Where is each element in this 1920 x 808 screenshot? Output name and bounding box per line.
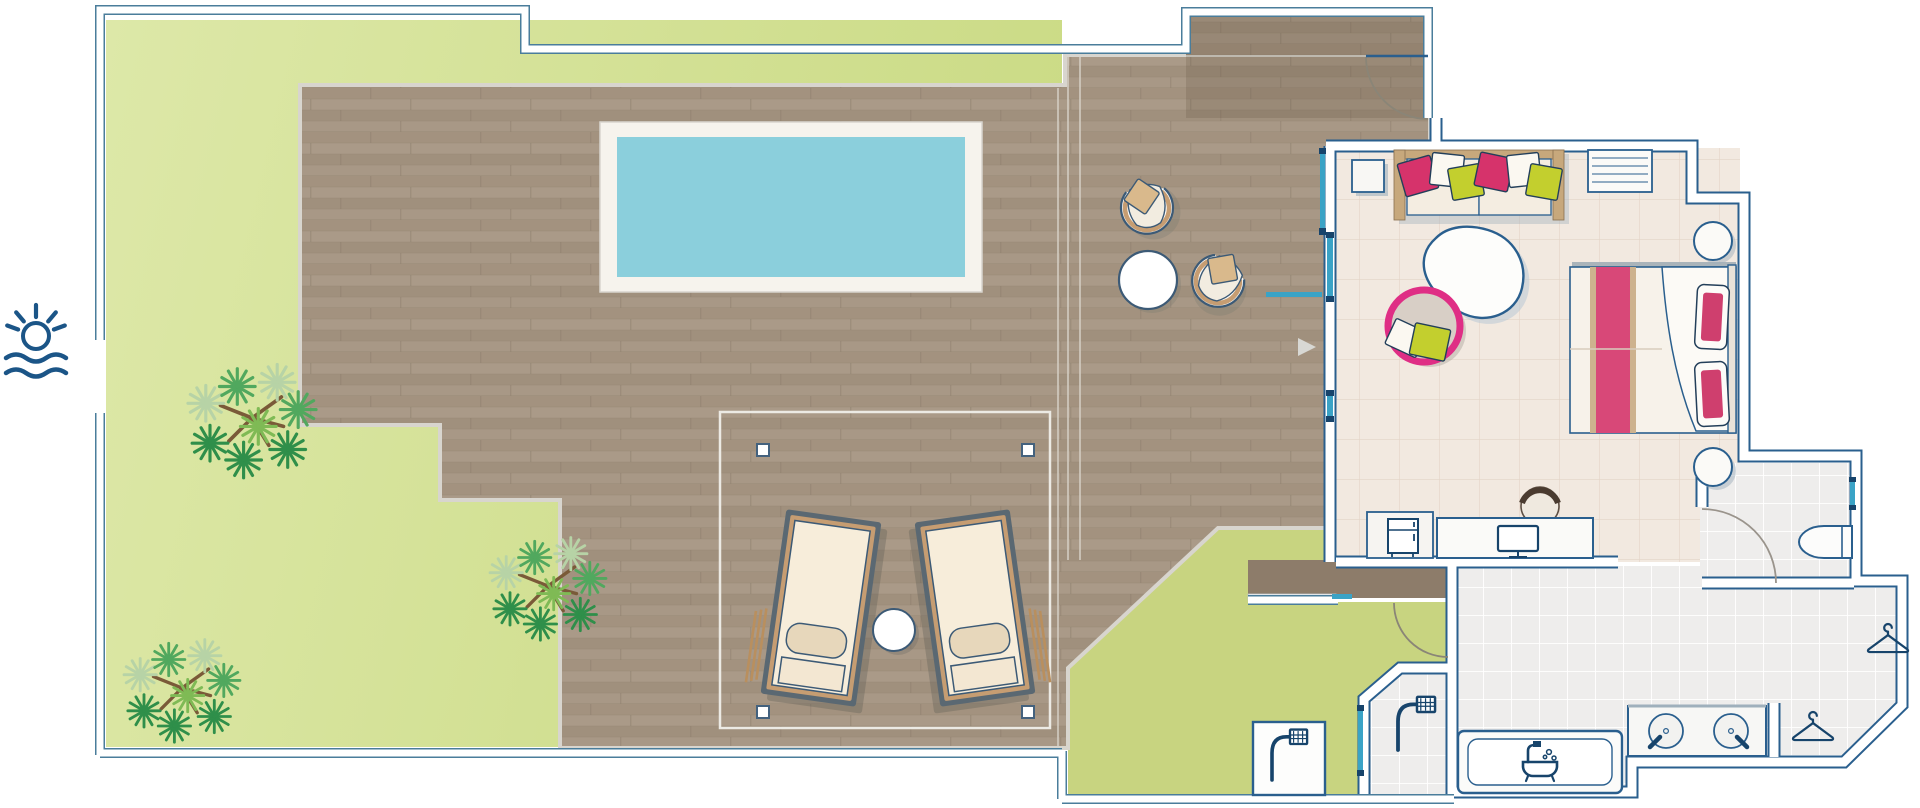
sofa-pillows — [1397, 152, 1563, 201]
toilet — [1799, 526, 1852, 558]
vanity — [1628, 706, 1766, 756]
floor-plan-canvas — [0, 0, 1920, 808]
shelf-unit — [1588, 150, 1652, 192]
sink-left — [1649, 714, 1683, 748]
side-table-square — [1352, 160, 1388, 196]
floor-plan-page — [0, 0, 1920, 808]
double-bed — [1570, 262, 1736, 433]
entrance-porch — [1186, 12, 1428, 118]
sun-waves-icon — [6, 305, 66, 377]
sofa — [1394, 150, 1569, 224]
swimming-pool — [600, 122, 982, 292]
fridge-icon — [1388, 519, 1418, 557]
bathtub — [1458, 731, 1622, 793]
desk — [1437, 518, 1593, 558]
outdoor-shower — [1253, 722, 1325, 795]
sink-right — [1714, 714, 1748, 748]
minibar — [1367, 512, 1433, 558]
